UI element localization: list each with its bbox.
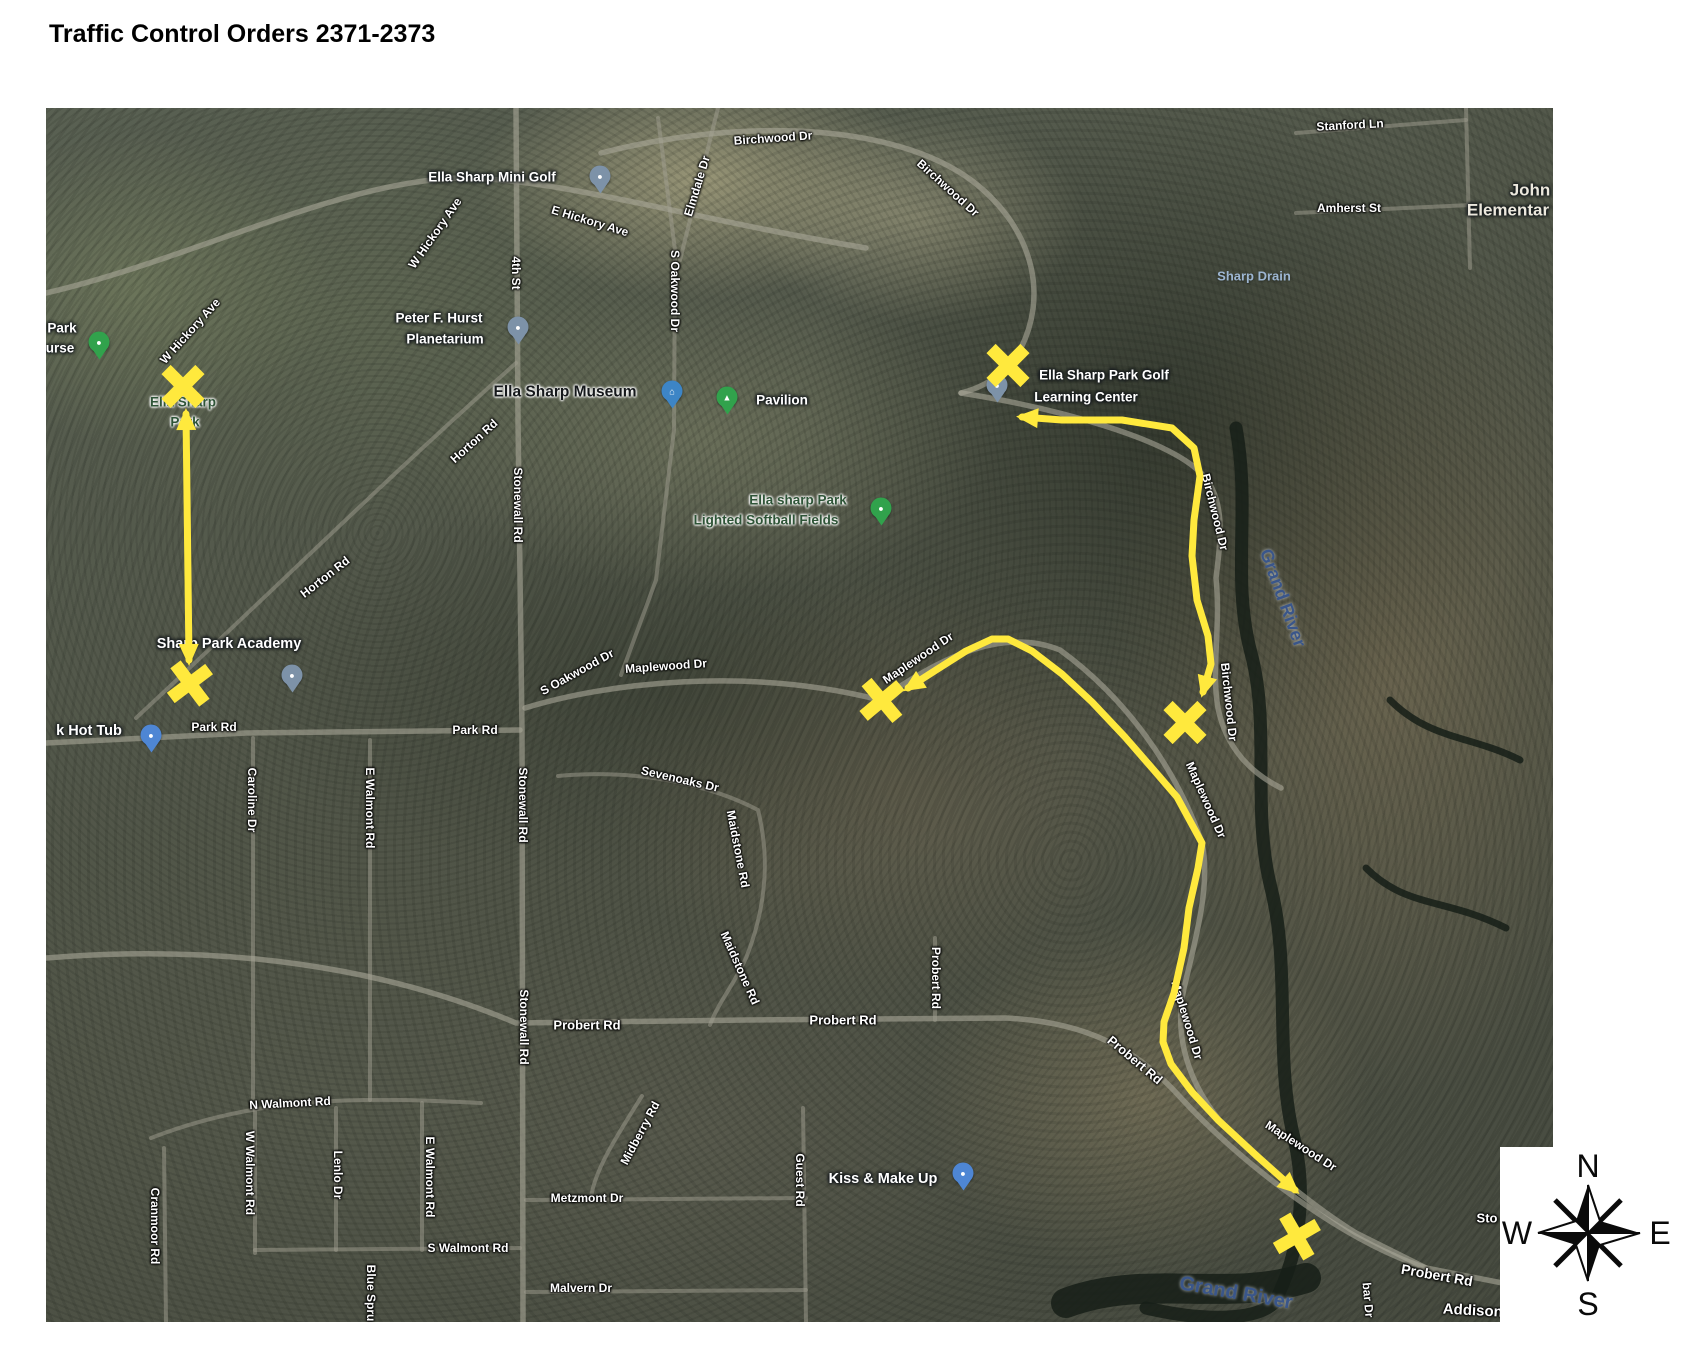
page: { "page": { "title": "Traffic Control Or… [0, 0, 1702, 1356]
satellite-map: Birchwood DrBirchwood DrBirchwood DrBirc… [46, 108, 1553, 1322]
compass-west-label: W [1502, 1215, 1533, 1251]
x-mark [1266, 1205, 1327, 1266]
compass-rose: N E S W [1500, 1147, 1696, 1322]
page-title: Traffic Control Orders 2371-2373 [49, 20, 435, 49]
x-mark [855, 673, 909, 727]
x-mark [983, 340, 1033, 390]
x-mark [158, 361, 208, 411]
compass-star [1538, 1185, 1640, 1281]
compass-north-label: N [1576, 1148, 1599, 1184]
x-mark [1160, 697, 1210, 747]
compass-east-label: E [1649, 1215, 1670, 1251]
compass-south-label: S [1577, 1286, 1598, 1322]
x-marks-layer [46, 108, 1553, 1322]
x-mark [162, 655, 218, 711]
